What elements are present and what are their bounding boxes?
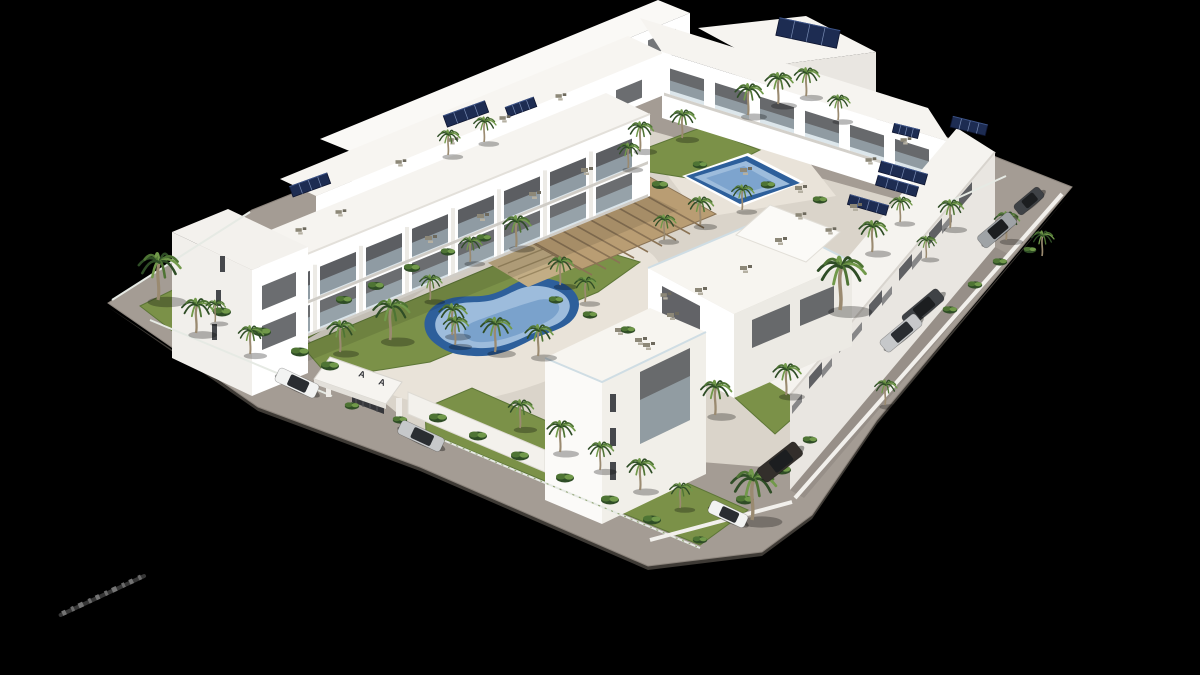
bush xyxy=(368,282,384,290)
bush xyxy=(813,196,827,203)
bush xyxy=(556,474,574,483)
bush xyxy=(404,264,420,272)
bush xyxy=(803,436,817,443)
bush xyxy=(429,414,447,423)
bush xyxy=(993,258,1007,265)
bush xyxy=(291,348,309,357)
bush xyxy=(583,311,597,318)
bush xyxy=(968,281,982,288)
bush xyxy=(761,181,775,188)
bush xyxy=(601,496,619,505)
bush xyxy=(549,296,563,303)
bush xyxy=(336,296,352,304)
bush xyxy=(321,362,339,371)
bush xyxy=(469,432,487,441)
palm-tree xyxy=(1032,231,1057,261)
bush xyxy=(1024,247,1037,253)
bush xyxy=(511,452,529,461)
render-stage: A A xyxy=(0,0,1200,675)
bush xyxy=(345,402,359,409)
bush xyxy=(652,181,668,189)
bush xyxy=(643,516,661,525)
bush xyxy=(621,326,635,333)
bush xyxy=(441,248,455,255)
bush xyxy=(943,306,957,313)
bush xyxy=(693,536,707,543)
aerial-render-canvas: A A xyxy=(0,0,1200,675)
watermark-text-illegible xyxy=(58,573,147,618)
bush xyxy=(693,161,707,168)
